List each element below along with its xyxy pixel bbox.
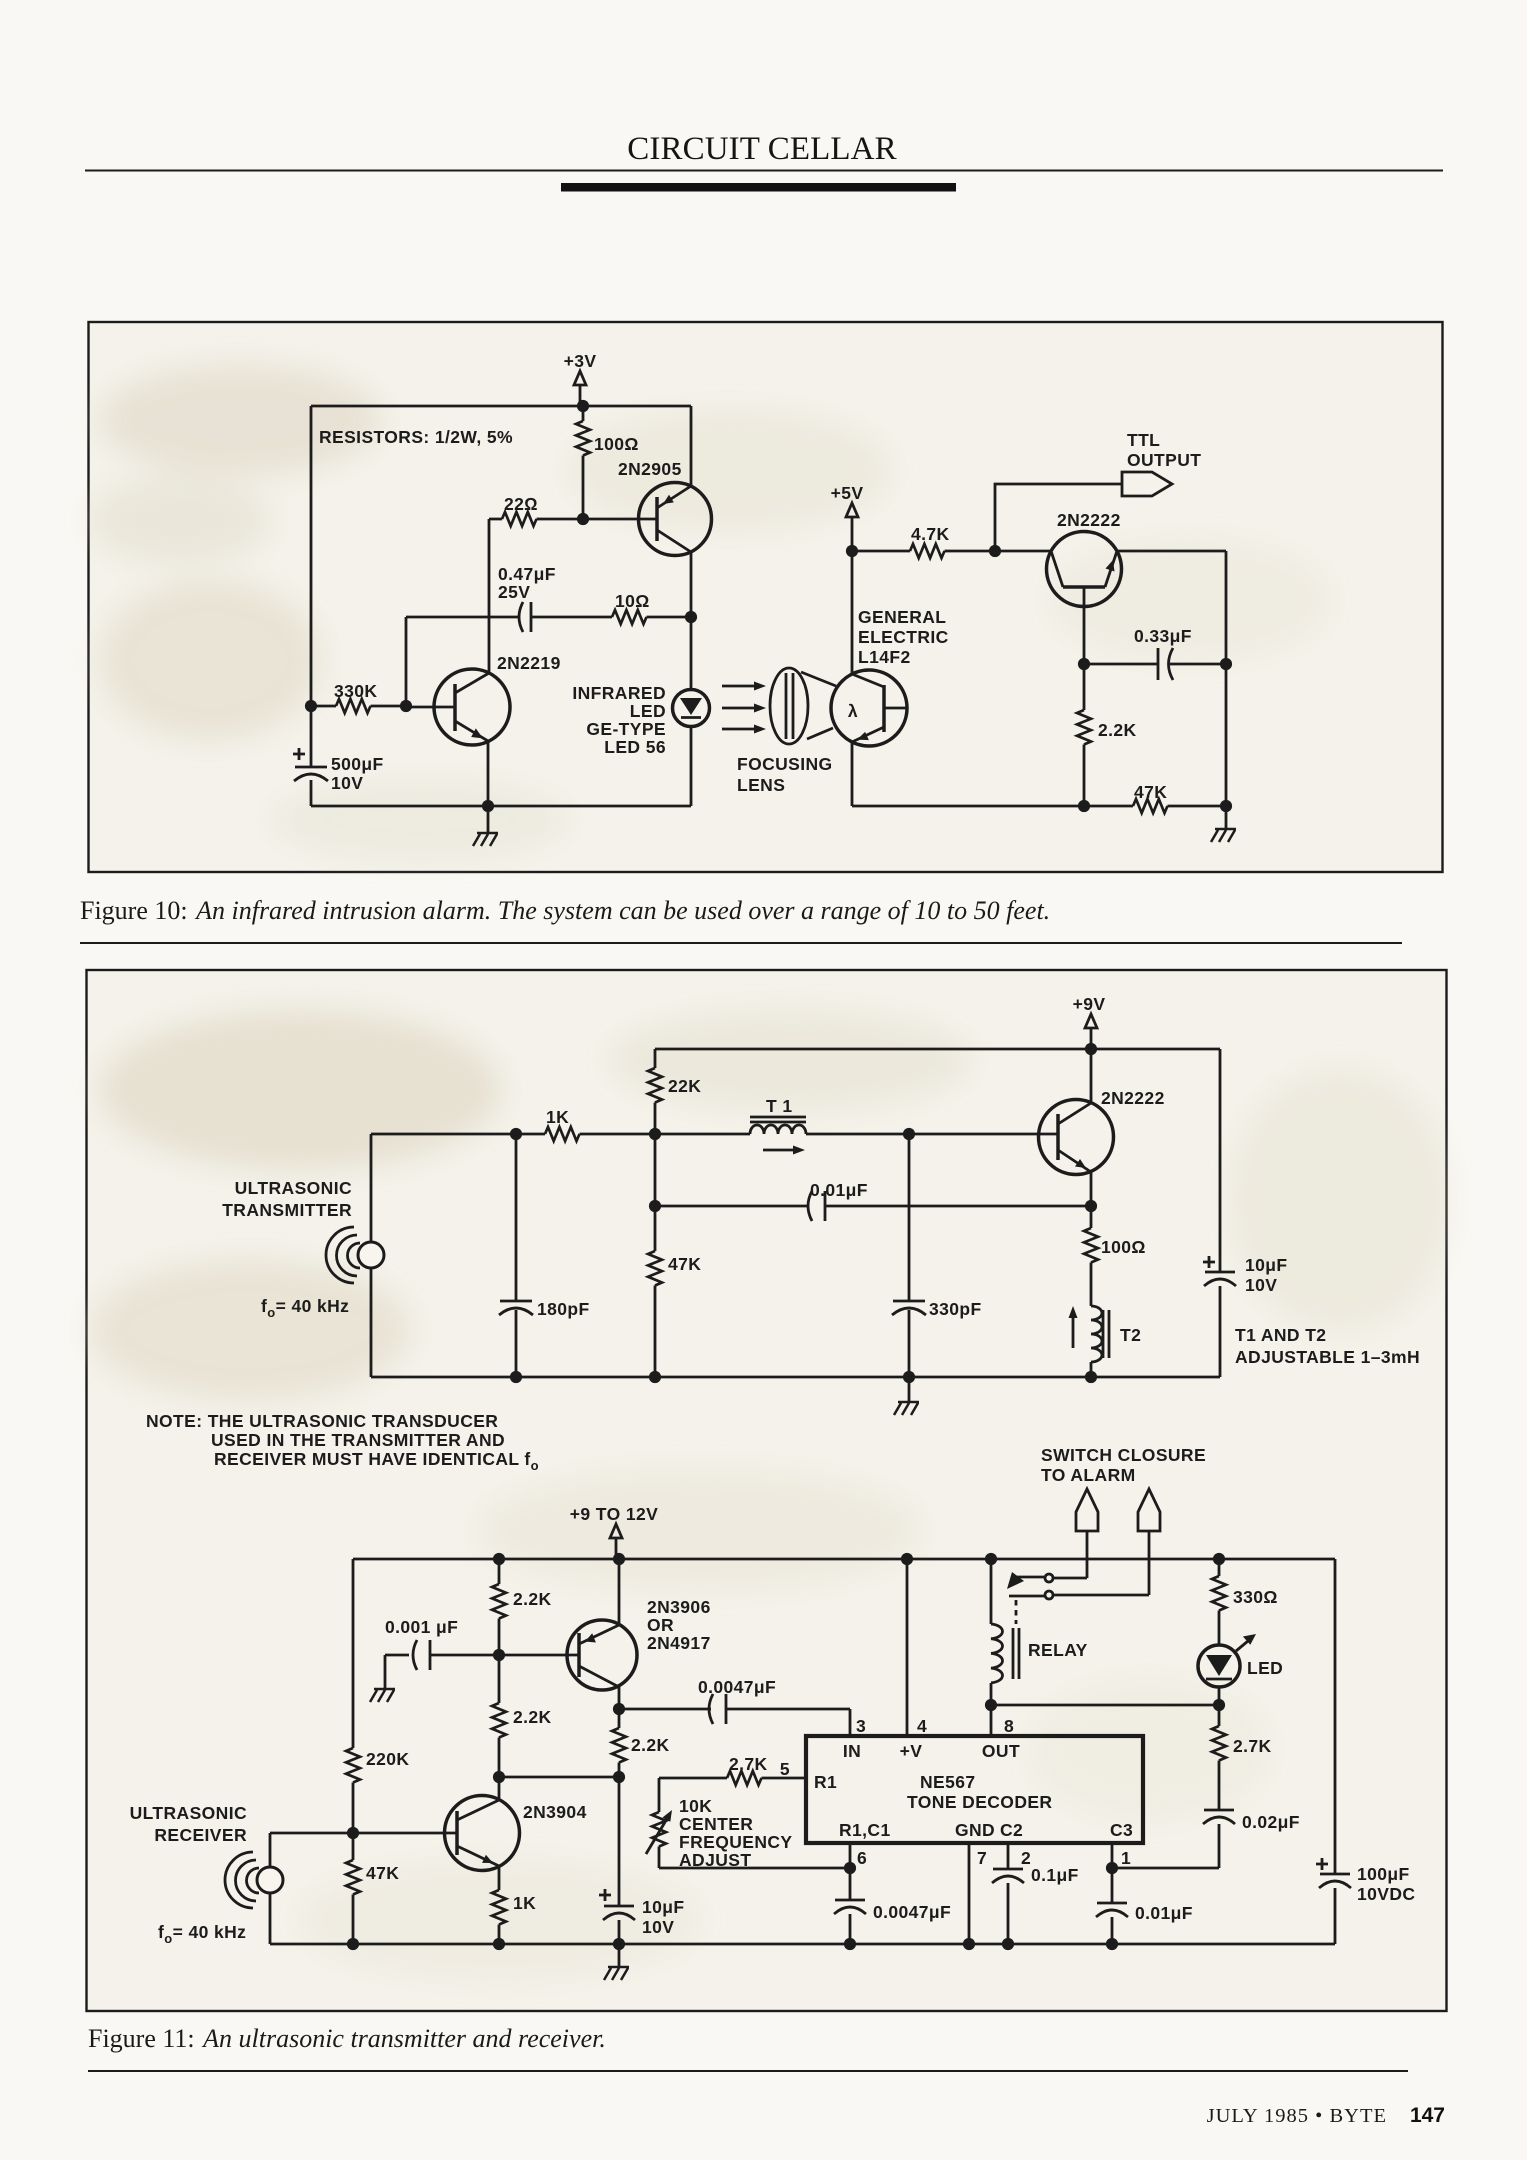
svg-text:1: 1: [1121, 1848, 1131, 1868]
svg-text:Figure 10: An infrared intrusi: Figure 10: An infrared intrusion alarm. …: [80, 896, 1050, 925]
svg-text:RELAY: RELAY: [1028, 1640, 1088, 1660]
svg-text:CENTER: CENTER: [679, 1814, 753, 1834]
svg-text:USED IN THE TRANSMITTER AND: USED IN THE TRANSMITTER AND: [211, 1430, 505, 1450]
svg-text:330pF: 330pF: [929, 1299, 982, 1319]
svg-text:GND: GND: [955, 1820, 995, 1840]
svg-text:100Ω: 100Ω: [1101, 1237, 1146, 1257]
svg-text:2N3906: 2N3906: [647, 1597, 711, 1617]
svg-text:8: 8: [1004, 1716, 1014, 1736]
svg-text:2N3904: 2N3904: [523, 1802, 587, 1822]
svg-text:7: 7: [977, 1848, 987, 1868]
svg-text:T1 AND T2: T1 AND T2: [1235, 1325, 1326, 1345]
svg-text:10VDC: 10VDC: [1357, 1884, 1415, 1904]
svg-text:CIRCUIT CELLAR: CIRCUIT CELLAR: [627, 131, 896, 167]
svg-text:22Ω: 22Ω: [504, 494, 538, 514]
svg-text:ULTRASONIC: ULTRASONIC: [235, 1178, 352, 1198]
svg-text:IN: IN: [843, 1741, 861, 1761]
svg-text:4.7K: 4.7K: [911, 524, 950, 544]
svg-text:0.02μF: 0.02μF: [1242, 1812, 1300, 1832]
svg-text:500μF: 500μF: [331, 754, 384, 774]
svg-text:NE567: NE567: [920, 1772, 976, 1792]
svg-text:ADJUSTABLE 1–3mH: ADJUSTABLE 1–3mH: [1235, 1347, 1420, 1367]
svg-text:100μF: 100μF: [1357, 1864, 1410, 1884]
svg-text:10V: 10V: [642, 1917, 674, 1937]
svg-text:0.0047μF: 0.0047μF: [698, 1677, 776, 1697]
svg-text:4: 4: [917, 1716, 927, 1736]
svg-text:+5V: +5V: [831, 483, 864, 503]
svg-text:25V: 25V: [498, 582, 530, 602]
svg-text:2N2222: 2N2222: [1057, 510, 1121, 530]
svg-text:0.001 μF: 0.001 μF: [385, 1617, 458, 1637]
svg-text:λ: λ: [848, 701, 858, 721]
svg-text:T 1: T 1: [766, 1096, 793, 1116]
svg-text:2.7K: 2.7K: [729, 1754, 768, 1774]
svg-text:TTL: TTL: [1127, 430, 1160, 450]
svg-text:ADJUST: ADJUST: [679, 1850, 751, 1870]
svg-text:47K: 47K: [366, 1863, 399, 1883]
svg-text:2.2K: 2.2K: [513, 1707, 552, 1727]
svg-text:10V: 10V: [331, 773, 363, 793]
svg-text:OUTPUT: OUTPUT: [1127, 450, 1201, 470]
svg-text:GE-TYPE: GE-TYPE: [586, 719, 666, 739]
svg-text:INFRARED: INFRARED: [572, 683, 666, 703]
svg-text:180pF: 180pF: [537, 1299, 590, 1319]
svg-text:47K: 47K: [668, 1254, 701, 1274]
svg-text:LED: LED: [630, 701, 666, 721]
svg-text:47K: 47K: [1134, 782, 1167, 802]
svg-text:T2: T2: [1120, 1325, 1141, 1345]
svg-text:5: 5: [780, 1759, 790, 1779]
svg-text:3: 3: [856, 1716, 866, 1736]
svg-text:2: 2: [1021, 1848, 1031, 1868]
svg-text:LED: LED: [1247, 1658, 1283, 1678]
svg-text:L14F2: L14F2: [858, 647, 911, 667]
svg-text:GENERAL: GENERAL: [858, 607, 946, 627]
svg-text:10Ω: 10Ω: [615, 591, 650, 611]
svg-text:FREQUENCY: FREQUENCY: [679, 1832, 792, 1852]
svg-text:LENS: LENS: [737, 775, 785, 795]
svg-text:FOCUSING: FOCUSING: [737, 754, 833, 774]
svg-text:NOTE: THE ULTRASONIC TRANSDUC: NOTE: THE ULTRASONIC TRANSDUCER: [146, 1411, 498, 1431]
svg-text:0.01μF: 0.01μF: [1135, 1903, 1193, 1923]
svg-text:1K: 1K: [546, 1107, 569, 1127]
svg-text:6: 6: [857, 1848, 867, 1868]
svg-text:RECEIVER: RECEIVER: [154, 1825, 247, 1845]
svg-text:2N4917: 2N4917: [647, 1633, 711, 1653]
svg-text:+9 TO 12V: +9 TO 12V: [570, 1504, 658, 1524]
svg-text:2N2222: 2N2222: [1101, 1088, 1165, 1108]
svg-text:10K: 10K: [679, 1796, 712, 1816]
svg-text:1K: 1K: [513, 1893, 536, 1913]
svg-text:TRANSMITTER: TRANSMITTER: [222, 1200, 352, 1220]
svg-text:0.0047μF: 0.0047μF: [873, 1902, 951, 1922]
svg-text:2N2219: 2N2219: [497, 653, 561, 673]
svg-text:ULTRASONIC: ULTRASONIC: [130, 1803, 247, 1823]
svg-text:0.33μF: 0.33μF: [1134, 626, 1192, 646]
svg-text:SWITCH CLOSURE: SWITCH CLOSURE: [1041, 1445, 1206, 1465]
svg-text:22K: 22K: [668, 1076, 701, 1096]
svg-text:100Ω: 100Ω: [594, 434, 639, 454]
svg-text:2.2K: 2.2K: [513, 1589, 552, 1609]
svg-text:C3: C3: [1110, 1820, 1133, 1840]
svg-text:JULY 1985 • BYTE: JULY 1985 • BYTE: [1207, 2105, 1387, 2127]
svg-text:0.1μF: 0.1μF: [1031, 1865, 1079, 1885]
svg-text:220K: 220K: [366, 1749, 409, 1769]
svg-text:R1,C1: R1,C1: [839, 1820, 891, 1840]
svg-text:+V: +V: [900, 1741, 923, 1761]
svg-text:2.7K: 2.7K: [1233, 1736, 1272, 1756]
svg-text:147: 147: [1410, 2104, 1445, 2127]
svg-text:10V: 10V: [1245, 1275, 1277, 1295]
svg-text:R1: R1: [814, 1772, 837, 1792]
svg-text:OR: OR: [647, 1615, 674, 1635]
svg-text:C2: C2: [1000, 1820, 1023, 1840]
svg-text:+9V: +9V: [1073, 994, 1106, 1014]
svg-text:2.2K: 2.2K: [631, 1735, 670, 1755]
svg-text:0.47μF: 0.47μF: [498, 564, 556, 584]
svg-text:330K: 330K: [334, 681, 377, 701]
svg-text:10μF: 10μF: [642, 1897, 684, 1917]
svg-text:0.01μF: 0.01μF: [810, 1180, 868, 1200]
svg-text:RESISTORS: 1/2W, 5%: RESISTORS: 1/2W, 5%: [319, 427, 513, 447]
svg-text:2.2K: 2.2K: [1098, 720, 1137, 740]
svg-text:ELECTRIC: ELECTRIC: [858, 627, 949, 647]
svg-text:TONE DECODER: TONE DECODER: [907, 1792, 1052, 1812]
svg-text:10μF: 10μF: [1245, 1255, 1287, 1275]
svg-text:330Ω: 330Ω: [1233, 1587, 1278, 1607]
svg-text:Figure 11: An ultrasonic trans: Figure 11: An ultrasonic transmitter and…: [88, 2024, 606, 2053]
svg-text:LED 56: LED 56: [604, 737, 666, 757]
svg-text:TO ALARM: TO ALARM: [1041, 1465, 1136, 1485]
svg-text:OUT: OUT: [982, 1741, 1020, 1761]
svg-text:2N2905: 2N2905: [618, 459, 682, 479]
